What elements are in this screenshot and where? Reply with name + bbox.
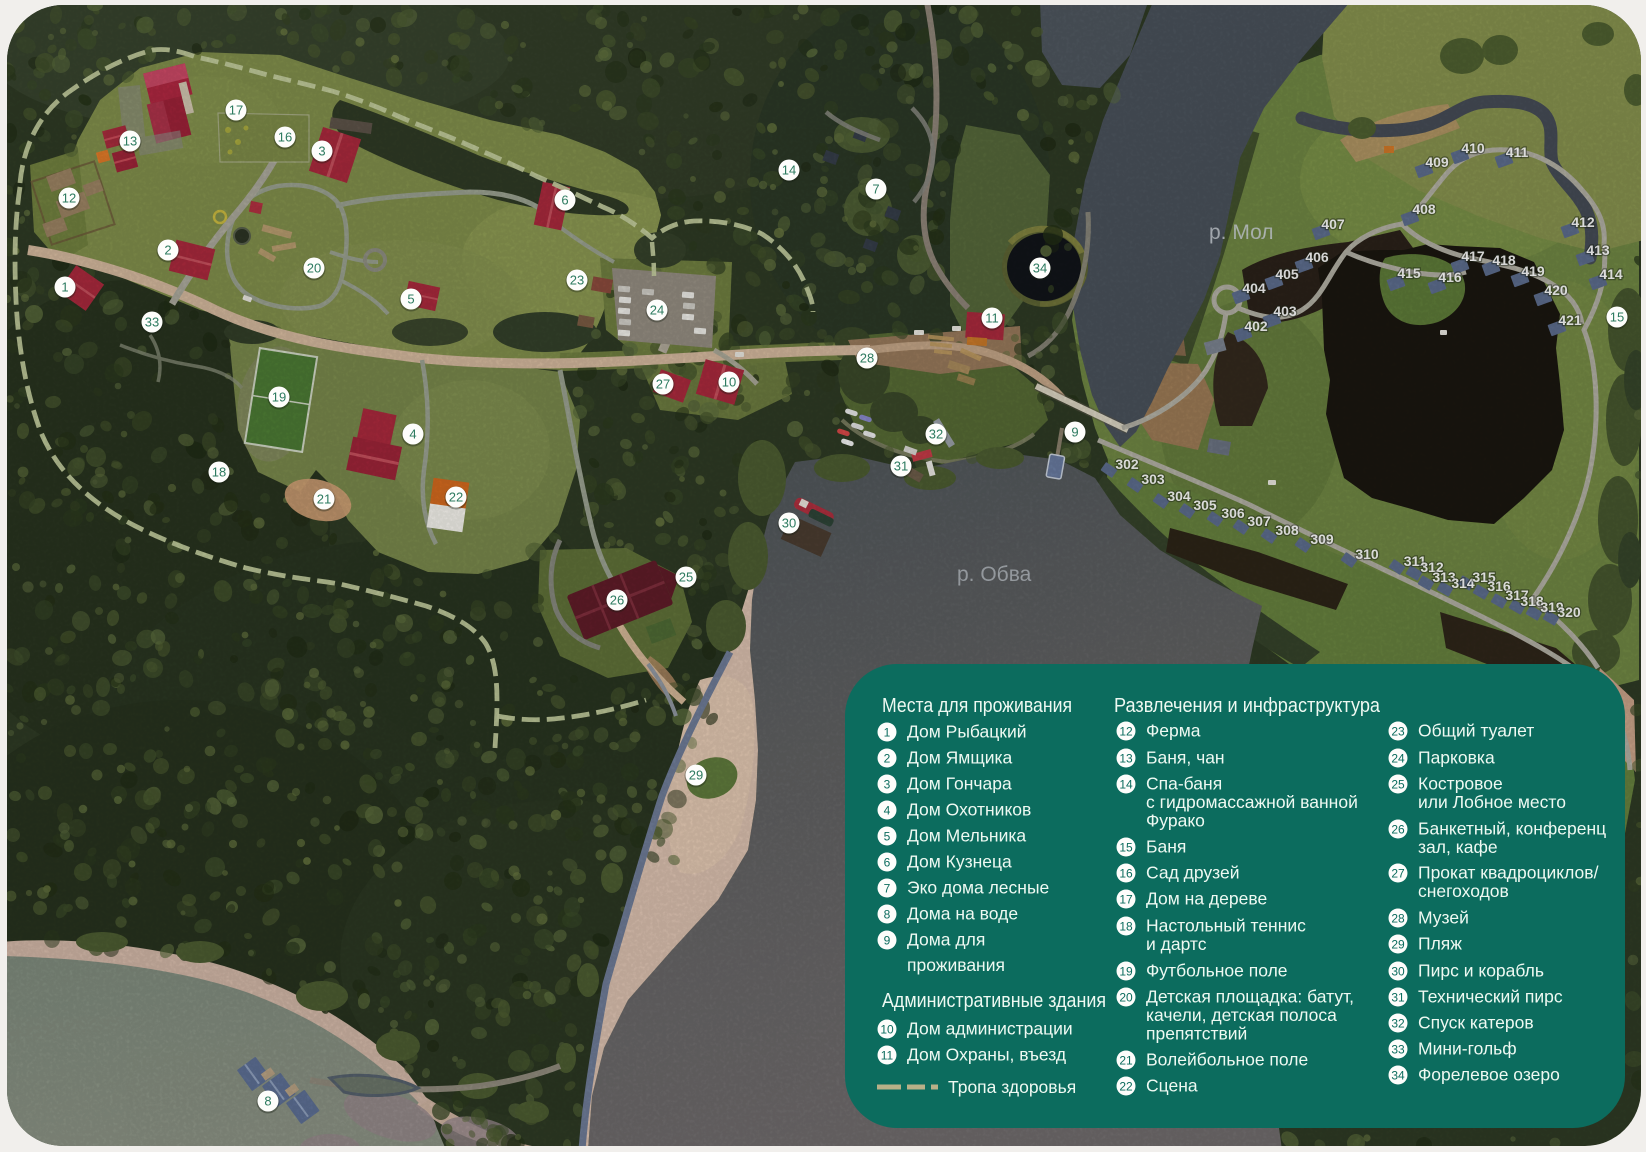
svg-text:Настольный теннис: Настольный теннис xyxy=(1146,916,1306,936)
svg-text:11: 11 xyxy=(985,311,999,326)
svg-text:Ферма: Ферма xyxy=(1146,721,1201,741)
svg-text:16: 16 xyxy=(278,130,292,145)
svg-text:Дом Кузнеца: Дом Кузнеца xyxy=(907,852,1012,872)
svg-text:32: 32 xyxy=(929,427,943,442)
svg-text:10: 10 xyxy=(880,1023,894,1037)
svg-text:23: 23 xyxy=(1391,725,1405,739)
svg-text:16: 16 xyxy=(1119,867,1133,881)
svg-text:34: 34 xyxy=(1033,261,1047,276)
svg-text:30: 30 xyxy=(1391,965,1405,979)
svg-text:Дом Гончара: Дом Гончара xyxy=(907,774,1012,794)
svg-text:13: 13 xyxy=(1119,752,1133,766)
svg-text:Музей: Музей xyxy=(1418,908,1469,928)
svg-text:14: 14 xyxy=(1119,778,1133,792)
svg-text:12: 12 xyxy=(62,191,76,206)
svg-text:23: 23 xyxy=(570,273,584,288)
svg-text:Форелевое озеро: Форелевое озеро xyxy=(1418,1065,1560,1085)
svg-text:32: 32 xyxy=(1391,1017,1405,1031)
svg-text:Спа-баня: Спа-баня xyxy=(1146,774,1222,794)
svg-text:6: 6 xyxy=(884,856,891,870)
svg-text:Сад друзей: Сад друзей xyxy=(1146,863,1239,883)
svg-text:18: 18 xyxy=(212,465,226,480)
svg-text:28: 28 xyxy=(860,351,874,366)
svg-text:20: 20 xyxy=(1119,991,1133,1005)
svg-text:29: 29 xyxy=(689,768,703,783)
svg-text:Прокат квадроциклов/: Прокат квадроциклов/ xyxy=(1418,863,1599,883)
svg-text:Мини-гольф: Мини-гольф xyxy=(1418,1039,1517,1059)
svg-text:6: 6 xyxy=(561,193,568,208)
svg-text:24: 24 xyxy=(1391,752,1405,766)
svg-text:31: 31 xyxy=(894,459,908,474)
svg-text:Технический пирс: Технический пирс xyxy=(1418,987,1563,1007)
svg-text:5: 5 xyxy=(407,292,414,307)
svg-text:19: 19 xyxy=(1119,965,1133,979)
svg-text:Пирс и корабль: Пирс и корабль xyxy=(1418,961,1544,981)
svg-text:Дом Рыбацкий: Дом Рыбацкий xyxy=(907,722,1027,742)
svg-text:14: 14 xyxy=(782,163,796,178)
svg-text:1: 1 xyxy=(884,726,891,740)
svg-text:зал, кафе: зал, кафе xyxy=(1418,837,1498,857)
svg-text:Административные здания: Административные здания xyxy=(882,990,1106,1012)
svg-text:33: 33 xyxy=(145,315,159,330)
svg-text:Футбольное поле: Футбольное поле xyxy=(1146,961,1288,981)
svg-text:22: 22 xyxy=(1119,1080,1133,1094)
svg-text:Общий туалет: Общий туалет xyxy=(1418,721,1534,741)
svg-text:4: 4 xyxy=(884,804,891,818)
svg-text:21: 21 xyxy=(317,492,331,507)
svg-text:31: 31 xyxy=(1391,991,1405,1005)
svg-text:27: 27 xyxy=(656,377,670,392)
svg-text:Развлечения и инфраструктура: Развлечения и инфраструктура xyxy=(1114,695,1381,717)
svg-text:8: 8 xyxy=(884,908,891,922)
svg-text:18: 18 xyxy=(1119,920,1133,934)
svg-text:Эко дома лесные: Эко дома лесные xyxy=(907,878,1049,898)
svg-text:Баня: Баня xyxy=(1146,837,1186,857)
svg-text:8: 8 xyxy=(264,1094,271,1109)
svg-text:2: 2 xyxy=(884,752,891,766)
svg-text:Банкетный, конференц: Банкетный, конференц xyxy=(1418,819,1606,839)
svg-text:5: 5 xyxy=(884,830,891,844)
svg-text:19: 19 xyxy=(272,390,286,405)
svg-text:проживания: проживания xyxy=(907,955,1005,975)
svg-text:качели, детская полоса: качели, детская полоса xyxy=(1146,1005,1337,1025)
svg-text:Фурако: Фурако xyxy=(1146,811,1205,831)
svg-text:или Лобное место: или Лобное место xyxy=(1418,792,1566,812)
svg-text:30: 30 xyxy=(782,516,796,531)
svg-text:28: 28 xyxy=(1391,912,1405,926)
svg-text:4: 4 xyxy=(409,427,416,442)
svg-text:15: 15 xyxy=(1610,310,1624,325)
svg-text:снегоходов: снегоходов xyxy=(1418,881,1509,901)
svg-text:29: 29 xyxy=(1391,938,1405,952)
svg-text:7: 7 xyxy=(872,182,879,197)
svg-text:26: 26 xyxy=(610,593,624,608)
svg-text:13: 13 xyxy=(123,134,137,149)
svg-text:24: 24 xyxy=(650,303,664,318)
svg-text:17: 17 xyxy=(1119,893,1133,907)
svg-text:Пляж: Пляж xyxy=(1418,934,1462,954)
svg-text:Дома для: Дома для xyxy=(907,930,985,950)
svg-text:1: 1 xyxy=(61,280,68,295)
svg-text:с гидромассажной ванной: с гидромассажной ванной xyxy=(1146,792,1358,812)
svg-text:17: 17 xyxy=(229,103,243,118)
svg-text:26: 26 xyxy=(1391,823,1405,837)
svg-text:Спуск катеров: Спуск катеров xyxy=(1418,1013,1534,1033)
svg-text:2: 2 xyxy=(164,243,171,258)
svg-text:Дом на дереве: Дом на дереве xyxy=(1146,889,1267,909)
svg-text:22: 22 xyxy=(449,490,463,505)
svg-text:27: 27 xyxy=(1391,867,1405,881)
svg-text:Дом администрации: Дом администрации xyxy=(907,1019,1073,1039)
svg-text:Детская площадка: батут,: Детская площадка: батут, xyxy=(1146,987,1354,1007)
svg-text:и дартс: и дартс xyxy=(1146,934,1207,954)
svg-text:9: 9 xyxy=(884,934,891,948)
svg-text:3: 3 xyxy=(318,144,325,159)
svg-text:Волейбольное поле: Волейбольное поле xyxy=(1146,1050,1308,1070)
svg-text:Тропа здоровья: Тропа здоровья xyxy=(948,1077,1076,1097)
svg-text:12: 12 xyxy=(1119,725,1133,739)
svg-text:Дом Мельника: Дом Мельника xyxy=(907,826,1026,846)
svg-text:Дома на воде: Дома на воде xyxy=(907,904,1018,924)
svg-text:9: 9 xyxy=(1071,425,1078,440)
svg-text:препятствий: препятствий xyxy=(1146,1024,1247,1044)
svg-text:25: 25 xyxy=(679,570,693,585)
svg-text:Дом Охраны, въезд: Дом Охраны, въезд xyxy=(907,1045,1066,1065)
svg-text:15: 15 xyxy=(1119,841,1133,855)
svg-text:7: 7 xyxy=(884,882,891,896)
svg-text:Парковка: Парковка xyxy=(1418,748,1495,768)
svg-text:Сцена: Сцена xyxy=(1146,1076,1198,1096)
svg-text:Дом Ямщика: Дом Ямщика xyxy=(907,748,1013,768)
svg-text:Места для проживания: Места для проживания xyxy=(882,695,1072,717)
svg-text:Костровое: Костровое xyxy=(1418,774,1503,794)
svg-text:21: 21 xyxy=(1119,1054,1133,1068)
svg-text:11: 11 xyxy=(881,1049,894,1063)
svg-text:3: 3 xyxy=(884,778,891,792)
svg-text:33: 33 xyxy=(1391,1043,1405,1057)
svg-text:10: 10 xyxy=(722,375,736,390)
svg-text:20: 20 xyxy=(307,261,321,276)
svg-text:34: 34 xyxy=(1391,1069,1405,1083)
svg-text:Баня, чан: Баня, чан xyxy=(1146,748,1225,768)
svg-text:Дом Охотников: Дом Охотников xyxy=(907,800,1031,820)
svg-text:25: 25 xyxy=(1391,778,1405,792)
